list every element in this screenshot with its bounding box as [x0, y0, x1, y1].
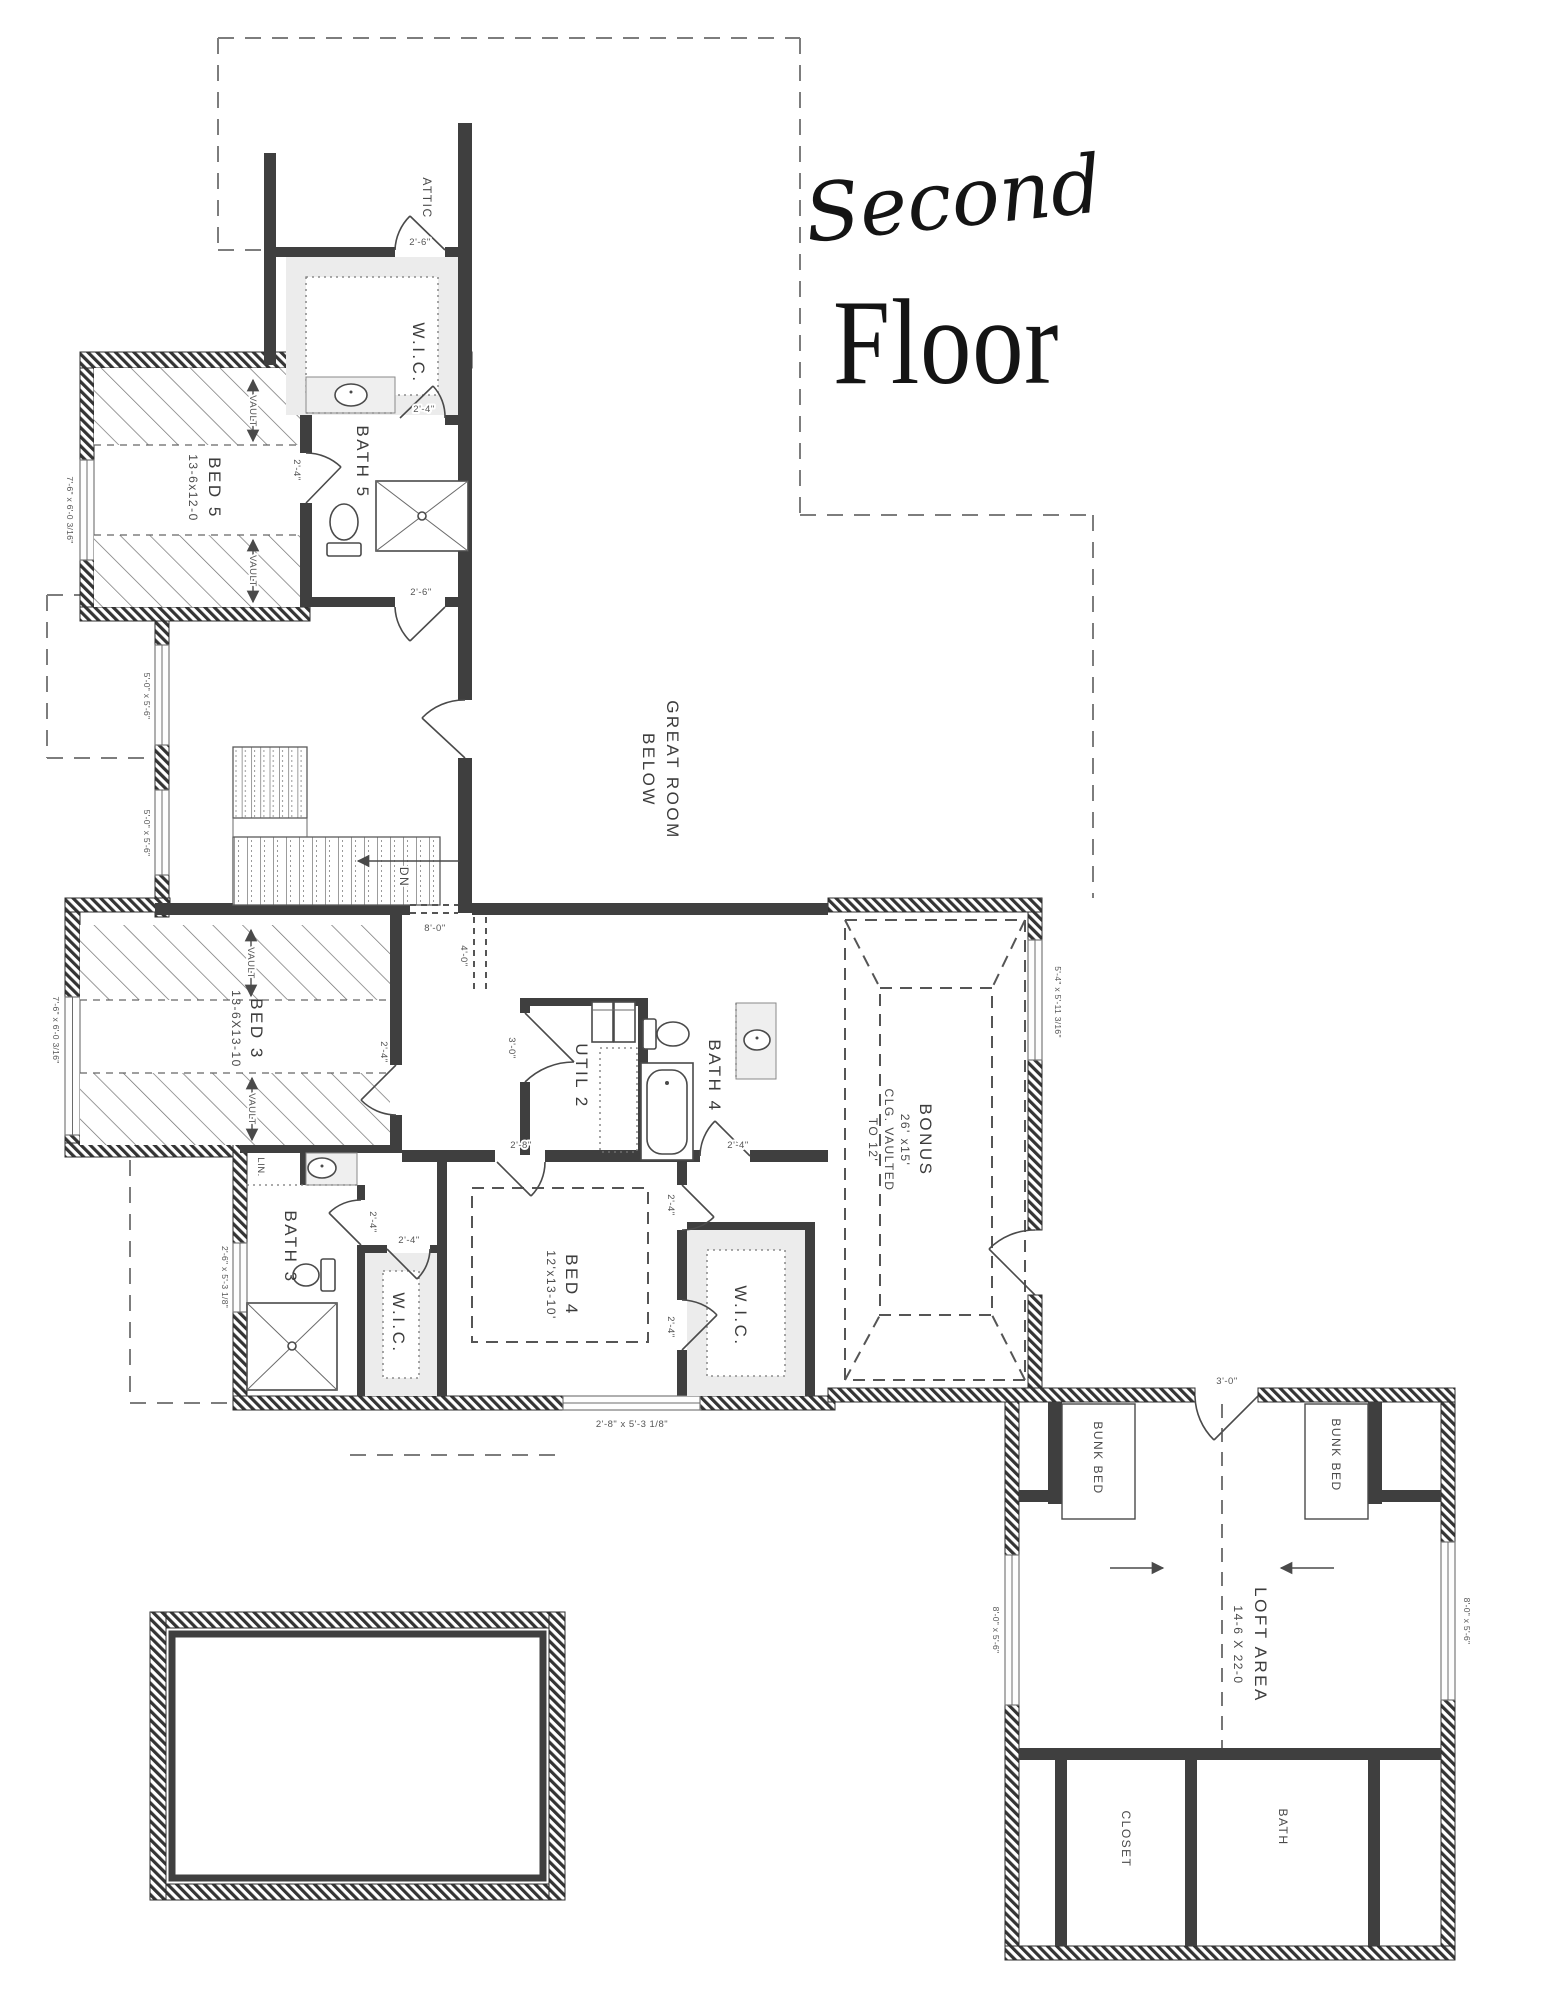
loft-window-right	[1441, 1542, 1455, 1700]
util2-door	[525, 1013, 574, 1082]
bed3-size: 13-6X13-10	[229, 990, 243, 1068]
stair-opening-dashes	[410, 905, 486, 992]
bed4-door-dim: 2'-8"	[510, 1140, 531, 1151]
util2-door-dim: 3'-0"	[506, 1037, 517, 1058]
bath3-door-dim: 2'-4"	[367, 1211, 378, 1232]
bed5-window	[80, 460, 94, 560]
bath5-door-dim: 2'-4"	[291, 459, 302, 480]
loft-door-dim: 3'-0"	[1216, 1376, 1237, 1387]
bed4-window-dim: 2'-8" x 5'-3 1/8"	[596, 1419, 668, 1430]
bed5-size: 13-6x12-0	[186, 454, 200, 522]
attic-label: ATTIC	[420, 177, 434, 218]
bath4-door-dim: 2'-4"	[727, 1140, 748, 1151]
bed3-window-dim: 7'-6" x 6'-0 3/16"	[51, 996, 61, 1063]
loft-label: LOFT AREA	[1251, 1587, 1270, 1703]
bonus-size: 26' x15'	[898, 1114, 912, 1167]
bunk-right-label: BUNK BED	[1329, 1418, 1343, 1491]
hall-top-door	[395, 607, 445, 641]
garage-roof-room	[150, 1612, 565, 1900]
bath3-shower	[247, 1303, 337, 1390]
bath3-sink	[308, 1158, 336, 1178]
wic-left-door-dim: 2'-4"	[398, 1235, 419, 1246]
wic-left-label: W.I.C.	[389, 1292, 408, 1353]
page-title: Floor	[833, 276, 1059, 410]
wic-right-door-top-dim: 2'-4"	[665, 1194, 676, 1215]
wic-top-label: W.I.C.	[409, 322, 428, 383]
bed4-ceiling-dash	[472, 1188, 648, 1342]
bed3-door-dim: 2'-4"	[378, 1041, 389, 1062]
bed4-door	[497, 1162, 545, 1196]
vault-label-bed5-bottom: VAULT	[247, 555, 258, 587]
wic-top-door-dim: 2'-4"	[413, 404, 434, 415]
bonus-note2: TO 12'	[866, 1118, 880, 1162]
bath4-toilet	[643, 1019, 689, 1049]
stair-window-lower	[155, 790, 169, 875]
bath5-shower	[376, 481, 468, 551]
bonus-loft-door	[989, 1230, 1035, 1295]
bath5-toilet	[327, 504, 361, 556]
loft-window-left	[1005, 1555, 1019, 1705]
great-room-hall-door	[422, 700, 465, 758]
loft-window-right-dim: 8'-0" x 5'-6"	[1462, 1598, 1472, 1645]
bed5-label: BED 5	[205, 457, 224, 519]
loft-window-left-dim: 8'-0" x 5'-6"	[991, 1607, 1001, 1654]
bath5-door	[306, 453, 341, 503]
closet-label: CLOSET	[1119, 1810, 1133, 1867]
bath5-sink	[335, 384, 367, 406]
vault-label-bed3-top: VAULT	[245, 947, 256, 979]
bonus-window	[1028, 940, 1042, 1060]
roof-outline-dashes	[47, 38, 1093, 1455]
bath-loft-label: BATH	[1276, 1808, 1290, 1845]
bath3-label: BATH 3	[281, 1210, 300, 1283]
bath5-label: BATH 5	[353, 425, 372, 498]
lin-label: LIN.	[255, 1157, 266, 1176]
great-room-label2: BELOW	[639, 733, 658, 807]
bed4-window	[563, 1396, 700, 1410]
bath3-window-dim: 2'-6" x 5'-3 1/8"	[220, 1246, 230, 1308]
attic-door-dim: 2'-6"	[409, 237, 430, 248]
stairs-dn-label: DN	[397, 867, 411, 887]
wic-right-label: W.I.C.	[731, 1285, 750, 1346]
bed4-size: 12'x13-10'	[544, 1250, 558, 1320]
vault-label-bed5-top: VAULT	[247, 395, 258, 427]
title-block: Second Floor	[800, 137, 1106, 410]
bonus-window-dim: 5'-4" x 5'-11 3/16"	[1053, 966, 1063, 1038]
util2-counter	[600, 1048, 637, 1152]
bonus-label: BONUS	[916, 1104, 935, 1177]
util2-washer-dryer	[592, 1002, 635, 1042]
hall-opening-dim: 4'-0"	[458, 945, 469, 966]
bath4-vanity	[736, 1003, 776, 1079]
floor-plan-sheet: Second Floor	[0, 0, 1545, 2000]
loft-size: 14-6 X 22-0	[1231, 1605, 1245, 1684]
bath3-door	[329, 1200, 361, 1245]
loft-annotations	[1110, 1404, 1334, 1748]
wic-right-door-dim: 2'-4"	[665, 1316, 676, 1337]
title-script: Second	[800, 137, 1106, 261]
bunk-left-label: BUNK BED	[1091, 1421, 1105, 1494]
bath4-label: BATH 4	[705, 1039, 724, 1112]
bed5-window-dim: 7'-6" x 6'-0 3/16"	[65, 476, 75, 543]
bed4-label: BED 4	[562, 1254, 581, 1316]
hall-top-door-dim: 2'-6"	[410, 587, 431, 598]
floor-plan-drawing: Second Floor	[0, 0, 1545, 2000]
bed3-window	[65, 997, 80, 1135]
stair-window-lower-dim: 5'-0" x 5'-6"	[142, 810, 152, 857]
staircase: DN	[233, 747, 460, 905]
stair-opening-dim: 8'-0"	[424, 923, 445, 934]
stair-window-upper-dim: 5'-0" x 5'-6"	[142, 673, 152, 720]
stair-window-upper	[155, 645, 169, 745]
util2-label: UTIL 2	[572, 1043, 591, 1108]
bed3-label: BED 3	[247, 998, 266, 1060]
bath4-tub	[641, 1063, 693, 1160]
bath3-window	[233, 1243, 247, 1312]
loft-entry-door	[1195, 1396, 1258, 1440]
bonus-note1: CLG. VAULTED	[882, 1089, 896, 1192]
great-room-label: GREAT ROOM	[663, 700, 682, 840]
vault-label-bed3-bottom: VAULT	[246, 1093, 257, 1125]
